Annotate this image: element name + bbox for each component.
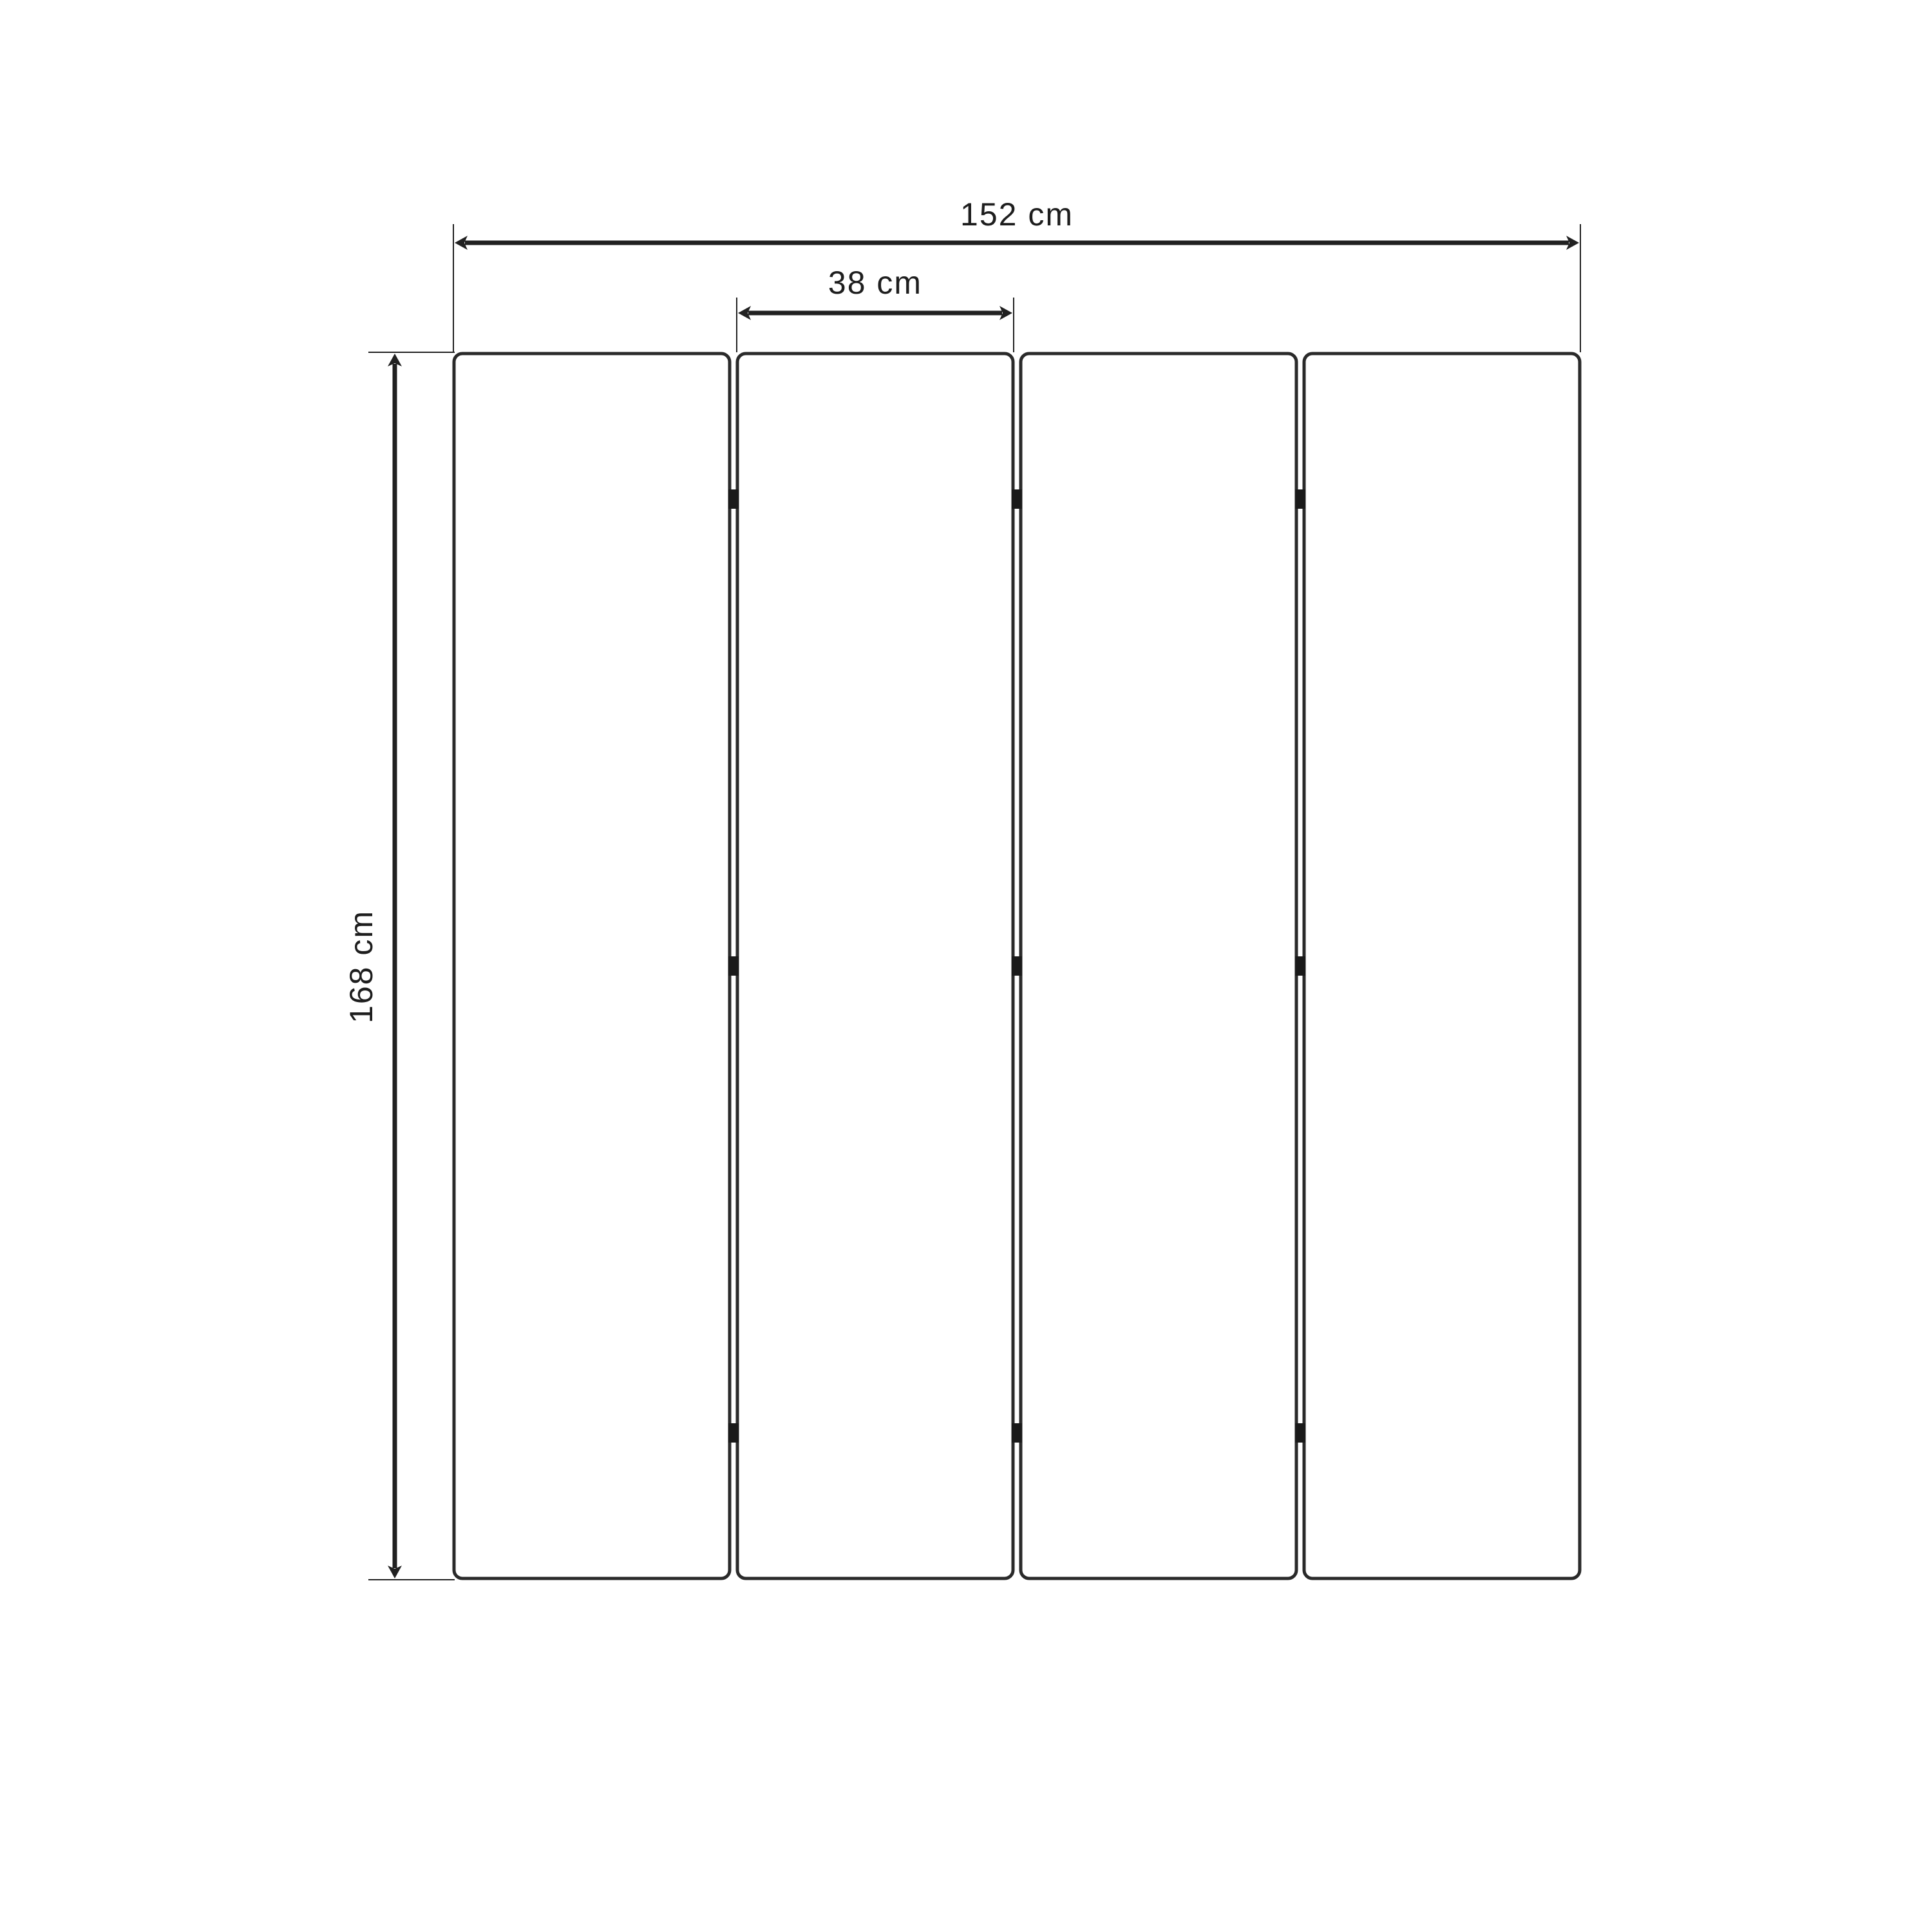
hinge-block (728, 1423, 739, 1443)
total-width-label: 152 cm (960, 196, 1074, 232)
hinge-block (1295, 1423, 1305, 1443)
panel-width-dimension: 38 cm (737, 265, 1014, 352)
hinge-block (1012, 1423, 1022, 1443)
hinge-block (1295, 956, 1305, 976)
panel-width-label: 38 cm (828, 265, 922, 301)
hinge-block (1295, 489, 1305, 509)
hinge-block (728, 489, 739, 509)
hinge-block (728, 956, 739, 976)
panel-4 (1304, 354, 1580, 1578)
dimension-diagram-canvas: 152 cm 38 cm 168 cm (0, 0, 1932, 1932)
total-width-dimension: 152 cm (453, 196, 1580, 352)
hinge-block (1012, 956, 1022, 976)
height-label: 168 cm (343, 910, 379, 1023)
hinge-block (1012, 489, 1022, 509)
dimension-diagram: 152 cm 38 cm 168 cm (0, 0, 1932, 1932)
height-dimension: 168 cm (343, 352, 455, 1580)
panel-2 (737, 354, 1013, 1578)
panel-3 (1021, 354, 1296, 1578)
panel-1 (454, 354, 730, 1578)
